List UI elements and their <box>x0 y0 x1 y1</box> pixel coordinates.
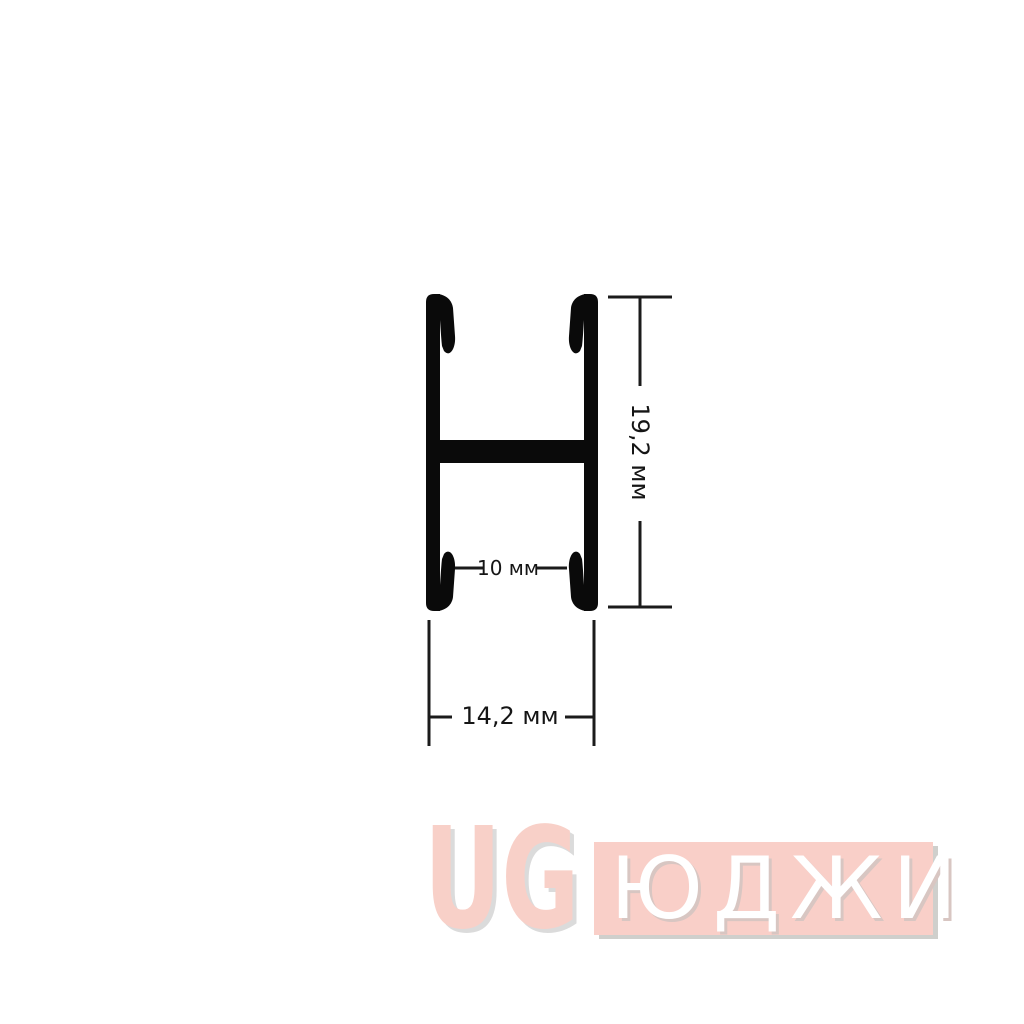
profile-crossbar <box>438 440 586 463</box>
profile-hook <box>438 294 455 353</box>
profile-right-bar <box>584 294 598 611</box>
outer-width-dimension-label: 14,2 мм <box>450 702 570 730</box>
h-profile-drawing <box>0 0 1024 1024</box>
product-image: 19,2 мм 10 мм 14,2 мм UG ЮДЖИ <box>0 0 1024 1024</box>
profile-left-bar <box>426 294 440 611</box>
inner-width-dimension-label: 10 мм <box>468 556 548 580</box>
height-dimension-label: 19,2 мм <box>625 382 655 522</box>
